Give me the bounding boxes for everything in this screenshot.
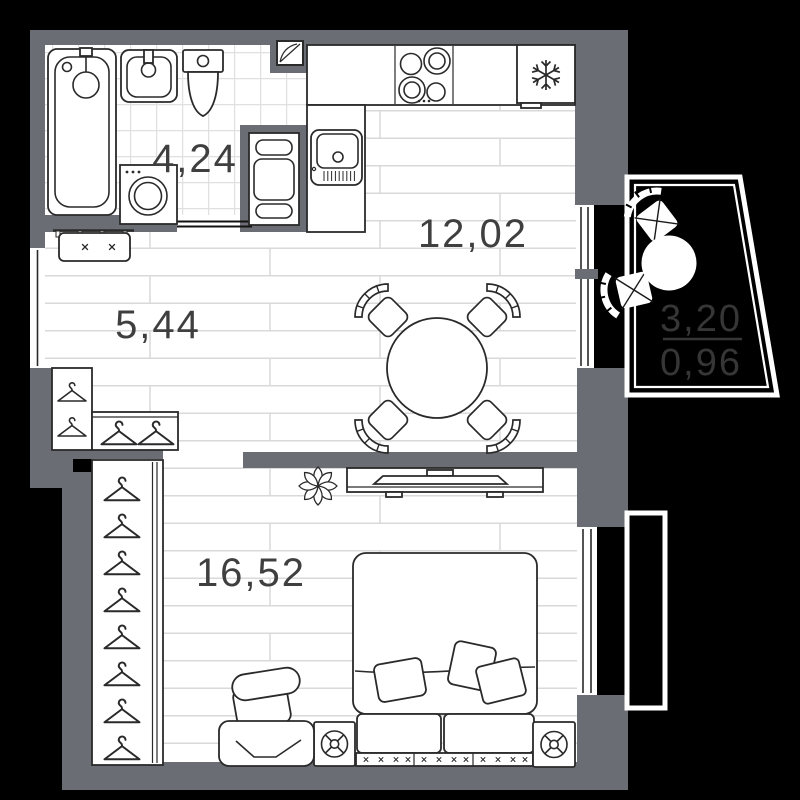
- wall-right-bottom-block: [577, 695, 628, 790]
- nightstand-icon: [533, 722, 575, 767]
- washbasin-icon: [121, 50, 177, 102]
- kitchen-sink-icon: [311, 130, 362, 185]
- bathtub-icon: [48, 48, 116, 215]
- hallway-area-label: 5,44: [115, 303, 201, 347]
- nightstand-icon: [314, 722, 355, 766]
- balcony-area-counted: 0,96: [660, 342, 742, 384]
- shoe-bench-icon: [53, 231, 134, 262]
- neighbor-balcony-outline: [627, 513, 665, 708]
- coat-closet-horizontal: [92, 412, 178, 450]
- wall-left-bedroom: [62, 472, 92, 762]
- vent-icon: [277, 41, 303, 65]
- dining-table-icon: [387, 318, 487, 418]
- bathroom-area-label: 4,24: [152, 137, 238, 181]
- wall-hall-bedroom-right: [243, 452, 577, 468]
- fridge-handle: [521, 103, 541, 108]
- tv-stand-icon: [347, 468, 543, 497]
- bathroom-door-threshold: [177, 215, 240, 232]
- floor-plan-image: 3,20 0,96: [0, 0, 800, 800]
- floor-plan-page: 3,20 0,96: [0, 0, 800, 800]
- wardrobe-icon: [92, 460, 163, 765]
- tv-icon: [374, 476, 507, 484]
- wall-left-mid: [30, 368, 52, 452]
- wall-top-right-block: [575, 30, 628, 205]
- balcony-table-icon: [642, 236, 697, 291]
- window-mullion: [575, 269, 598, 279]
- pillow-icon: [373, 657, 427, 703]
- window-left-hallway: [30, 248, 45, 368]
- bed-icon: [353, 553, 537, 766]
- balcony-area-total: 3,20: [660, 298, 742, 340]
- fridge-icon: [517, 45, 575, 108]
- kitchen-area-label: 12,02: [418, 212, 528, 256]
- coat-closet-vertical: [52, 368, 92, 450]
- bedroom-area-label: 16,52: [196, 551, 306, 595]
- wall-right-mid-block: [577, 368, 628, 527]
- flower-icon: [299, 467, 337, 505]
- utility-unit-icon: [249, 133, 299, 225]
- window-kitchen-right: [575, 205, 598, 368]
- window-bedroom-right: [577, 527, 597, 695]
